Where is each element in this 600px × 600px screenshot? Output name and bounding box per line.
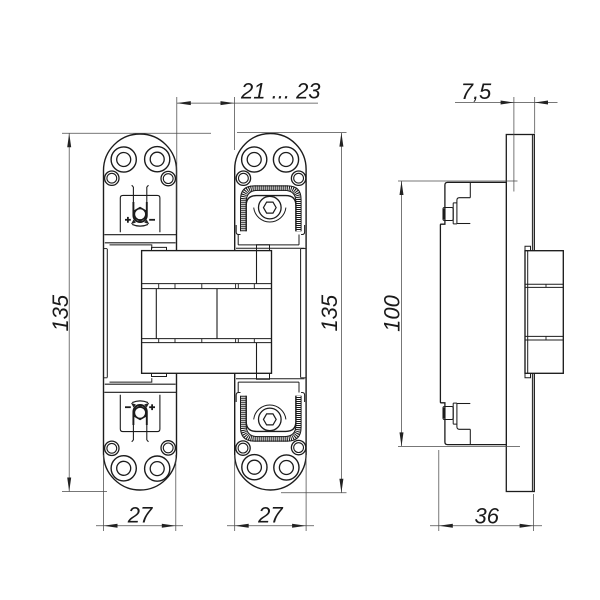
- svg-text:7,5: 7,5: [461, 79, 492, 104]
- svg-text:135: 135: [48, 294, 73, 331]
- svg-text:21 ... 23: 21 ... 23: [240, 79, 321, 104]
- svg-text:36: 36: [474, 503, 499, 528]
- svg-text:27: 27: [127, 503, 153, 528]
- svg-text:100: 100: [380, 294, 405, 331]
- svg-text:27: 27: [257, 503, 283, 528]
- svg-text:135: 135: [317, 294, 342, 331]
